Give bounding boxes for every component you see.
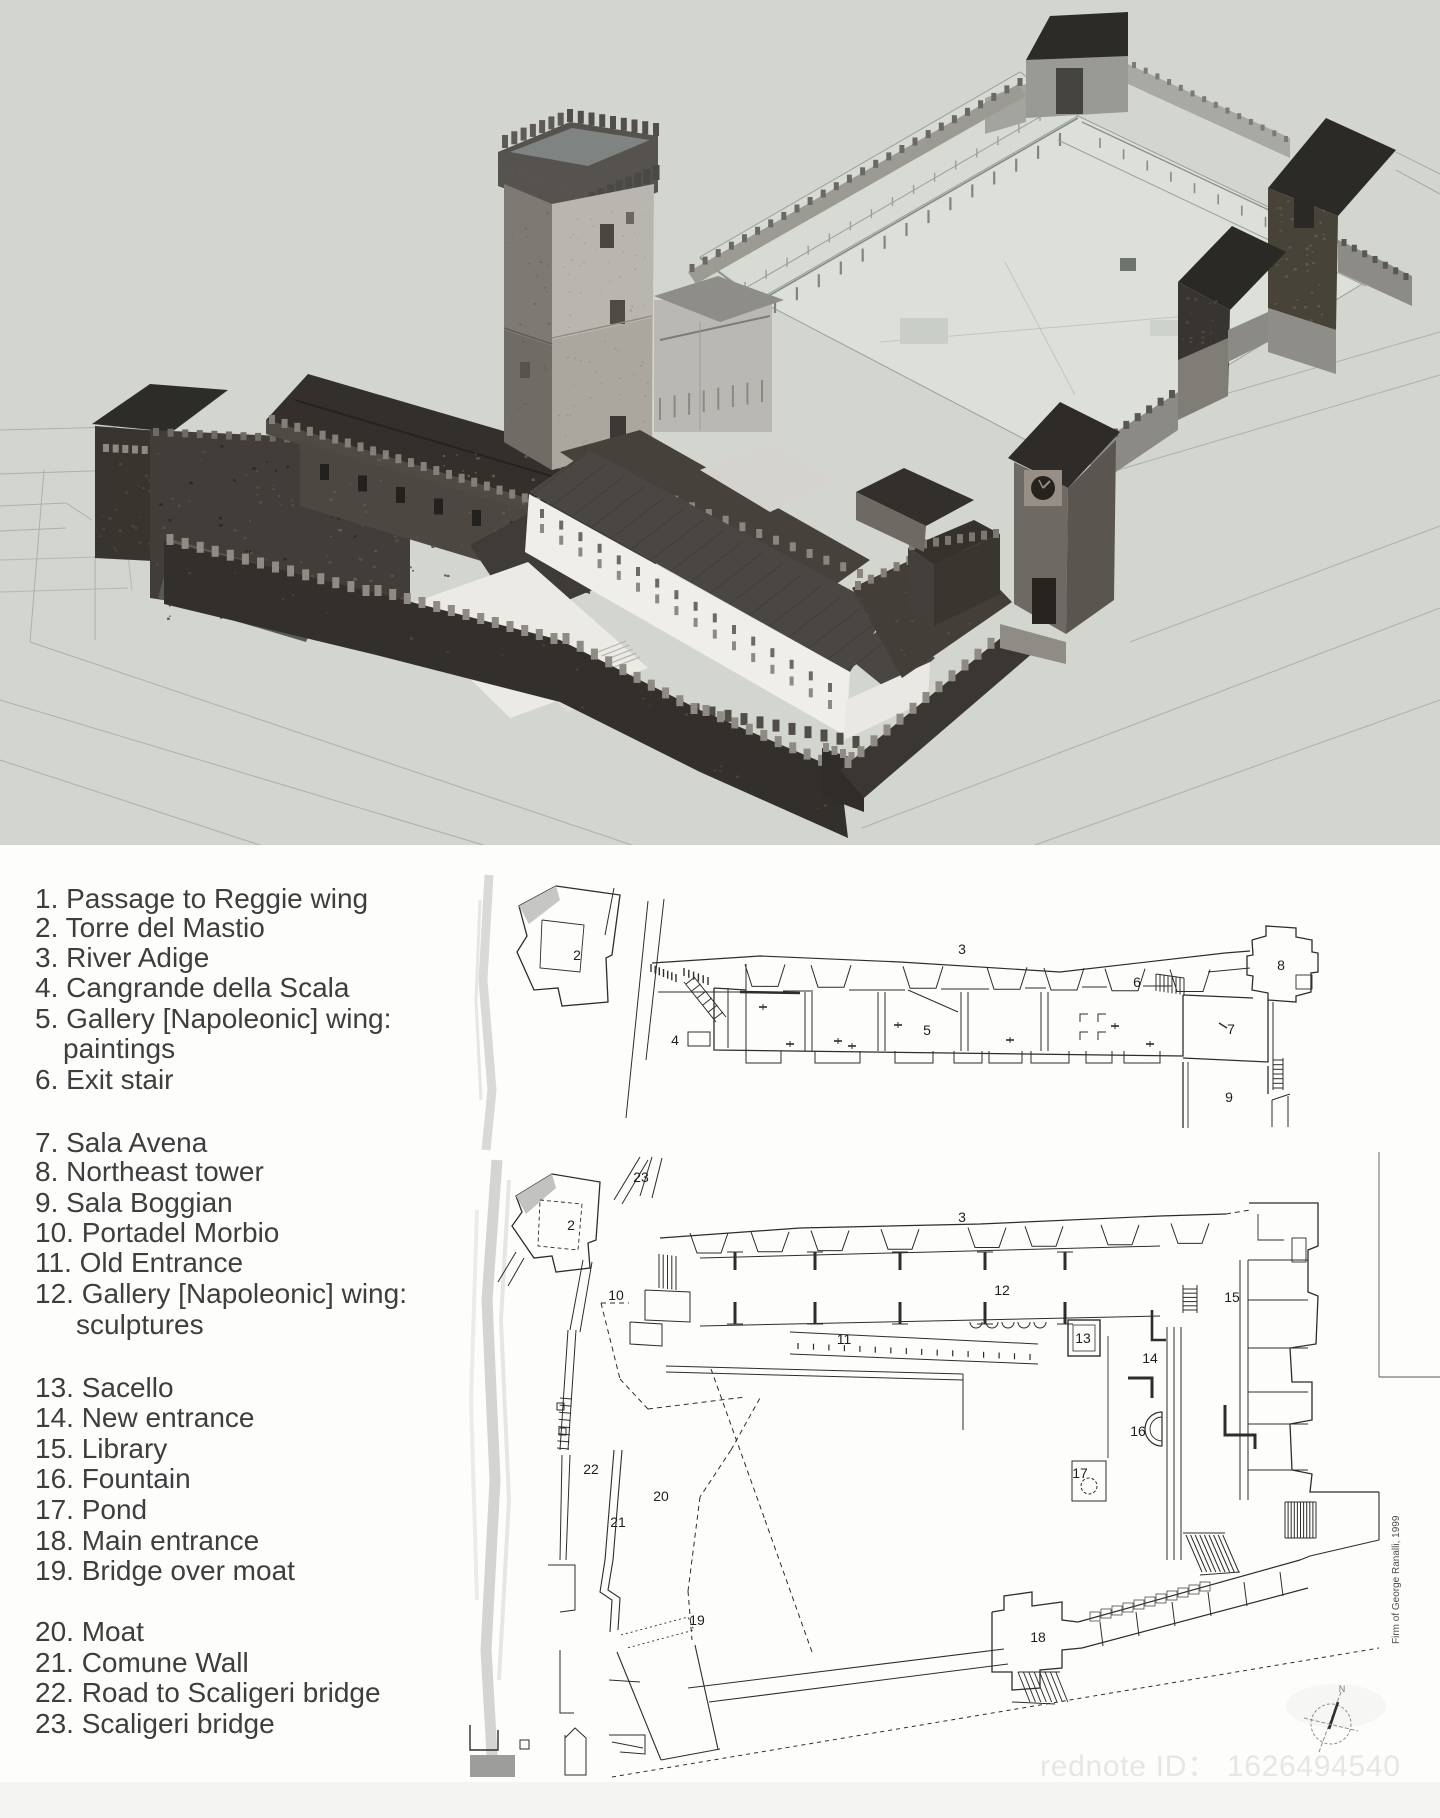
svg-text:2: 2 (567, 1217, 575, 1233)
svg-text:17: 17 (1072, 1465, 1088, 1481)
svg-text:12: 12 (994, 1282, 1010, 1298)
svg-text:18: 18 (1030, 1629, 1046, 1645)
svg-text:4: 4 (671, 1032, 679, 1048)
svg-text:Firm of George Ranalli, 1999: Firm of George Ranalli, 1999 (1391, 1515, 1402, 1644)
svg-text:5: 5 (923, 1022, 931, 1038)
svg-text:3: 3 (958, 1209, 966, 1225)
svg-text:6: 6 (1133, 974, 1141, 990)
svg-text:20: 20 (653, 1488, 669, 1504)
svg-text:14: 14 (1142, 1350, 1158, 1366)
svg-text:16: 16 (1130, 1423, 1146, 1439)
svg-text:7: 7 (1227, 1021, 1235, 1037)
svg-text:13: 13 (1075, 1330, 1091, 1346)
svg-text:rednote ID： 1626494540: rednote ID： 1626494540 (1040, 1750, 1401, 1783)
svg-text:22: 22 (583, 1461, 599, 1477)
svg-text:N: N (1339, 1684, 1346, 1694)
svg-text:21: 21 (610, 1514, 626, 1530)
svg-text:19: 19 (689, 1612, 705, 1628)
svg-text:8: 8 (1277, 957, 1285, 973)
svg-text:11: 11 (837, 1331, 852, 1347)
svg-text:15: 15 (1224, 1289, 1240, 1305)
svg-text:3: 3 (958, 941, 966, 957)
svg-text:9: 9 (1225, 1089, 1233, 1105)
svg-text:23: 23 (633, 1169, 649, 1185)
svg-text:10: 10 (608, 1287, 624, 1303)
svg-text:2: 2 (573, 947, 581, 963)
